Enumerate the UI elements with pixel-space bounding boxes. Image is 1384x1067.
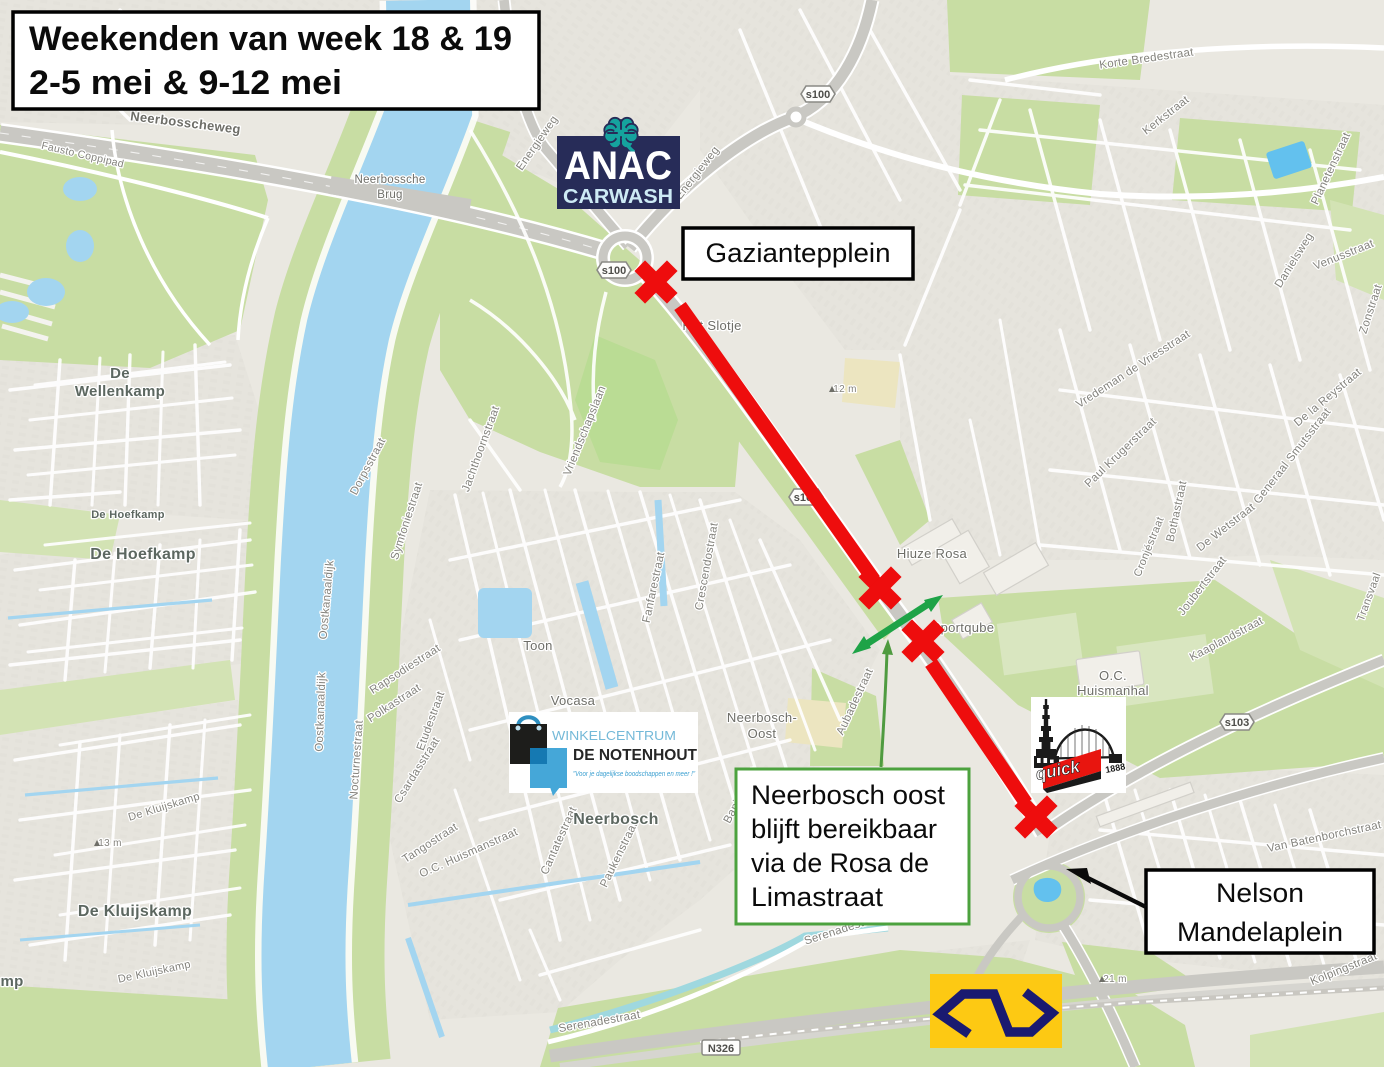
svg-text:Nelson: Nelson	[1216, 878, 1304, 908]
svg-text:Mandelaplein: Mandelaplein	[1177, 917, 1343, 947]
svg-text:Gaziantepplein: Gaziantepplein	[706, 238, 891, 268]
svg-text:Huismanhal: Huismanhal	[1077, 683, 1149, 698]
svg-text:s100: s100	[806, 89, 830, 101]
svg-text:De Hoefkamp: De Hoefkamp	[90, 546, 196, 563]
svg-text:Oost: Oost	[748, 726, 777, 741]
svg-text:Wellenkamp: Wellenkamp	[75, 383, 165, 400]
svg-text:Limastraat: Limastraat	[751, 882, 884, 912]
svg-text:s103: s103	[1225, 717, 1249, 729]
svg-text:ANAC: ANAC	[564, 144, 672, 188]
svg-text:O.C.: O.C.	[1099, 668, 1127, 683]
svg-text:Toon: Toon	[523, 638, 552, 653]
svg-text:via de Rosa de: via de Rosa de	[751, 848, 929, 878]
svg-text:Hiuze Rosa: Hiuze Rosa	[897, 546, 968, 561]
svg-text:Vocasa: Vocasa	[551, 693, 596, 708]
svg-text:CARWASH: CARWASH	[563, 186, 673, 208]
svg-text:Neerbosch: Neerbosch	[573, 811, 658, 828]
svg-text:N326: N326	[708, 1043, 734, 1055]
svg-text:Neerbosch-: Neerbosch-	[727, 710, 797, 725]
svg-text:WINKELCENTRUM: WINKELCENTRUM	[552, 729, 676, 743]
svg-text:DE NOTENHOUT: DE NOTENHOUT	[573, 747, 697, 764]
svg-text:Neerbosch oost: Neerbosch oost	[751, 780, 946, 810]
svg-text:De: De	[110, 365, 130, 382]
svg-text:De Kluijskamp: De Kluijskamp	[78, 903, 192, 920]
svg-text:12 m: 12 m	[833, 384, 856, 395]
svg-text:Weekenden van week 18 & 19: Weekenden van week 18 & 19	[29, 20, 512, 58]
svg-text:De Hoefkamp: De Hoefkamp	[91, 509, 165, 521]
svg-text:s100: s100	[602, 265, 626, 277]
svg-text:Neerbossche: Neerbossche	[354, 174, 425, 186]
svg-text:mp: mp	[0, 973, 23, 990]
svg-text:13 m: 13 m	[98, 838, 121, 849]
svg-text:Brug: Brug	[377, 189, 403, 201]
svg-text:blijft bereikbaar: blijft bereikbaar	[751, 814, 937, 844]
svg-text:21 m: 21 m	[1103, 974, 1126, 985]
svg-text:2-5 mei & 9-12 mei: 2-5 mei & 9-12 mei	[29, 64, 342, 102]
svg-text:"Voor je dagelijkse boodschapp: "Voor je dagelijkse boodschappen en meer…	[573, 769, 695, 778]
